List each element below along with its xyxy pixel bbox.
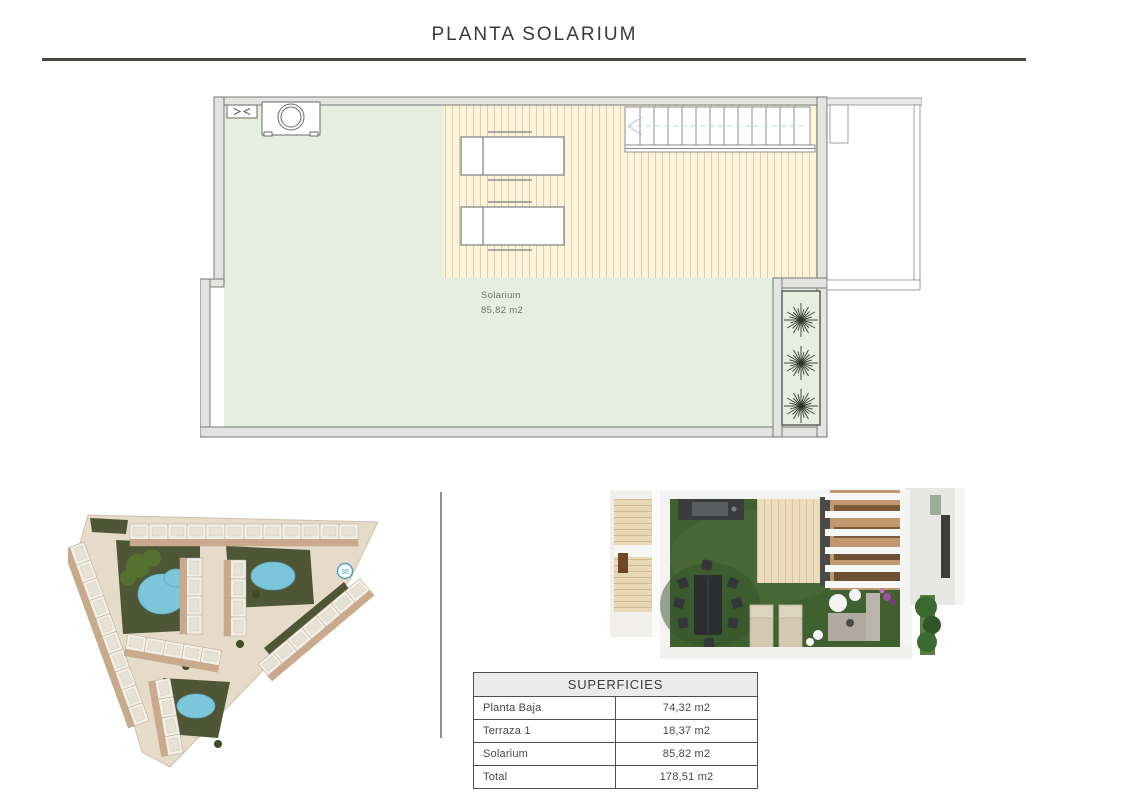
room-name: Solarium <box>481 288 523 303</box>
plan-sheet: PLANTA SOLARIUM <box>0 0 1131 800</box>
planter <box>782 291 820 425</box>
deck-shadow-edge <box>820 497 830 587</box>
room-area: 85,82 m2 <box>481 303 523 318</box>
page-title: PLANTA SOLARIUM <box>0 24 1069 46</box>
row-label: Terraza 1 <box>474 720 616 743</box>
table-row: Solarium 85,82 m2 <box>474 743 758 766</box>
stairs <box>625 107 815 152</box>
neighbor-unit-outline <box>827 98 922 290</box>
solarium-floor-plan-drawing <box>200 95 922 443</box>
bottom-wall <box>660 647 912 659</box>
row-value: 178,51 m2 <box>616 766 758 789</box>
sun-lounger-1 <box>461 132 564 180</box>
table-header: SUPERFICIES <box>474 673 758 697</box>
row-value: 18,37 m2 <box>616 720 758 743</box>
terrace-wood-deck <box>757 499 820 583</box>
table-row: Total 178,51 m2 <box>474 766 758 789</box>
table-row: Terraza 1 18,37 m2 <box>474 720 758 743</box>
unit-marker: 36 <box>338 564 353 579</box>
table-row: Planta Baja 74,32 m2 <box>474 697 758 720</box>
title-rule <box>42 58 1026 61</box>
interior-rooms <box>610 490 662 637</box>
pergola <box>825 490 911 590</box>
row-label: Solarium <box>474 743 616 766</box>
row-label: Planta Baja <box>474 697 616 720</box>
vent-icon <box>227 105 257 118</box>
washing-machine-icon <box>262 102 320 136</box>
ground-floor-3d-render <box>610 487 965 665</box>
sun-lounger-2 <box>461 202 564 250</box>
row-value: 85,82 m2 <box>616 743 758 766</box>
areas-table: SUPERFICIES Planta Baja 74,32 m2 Terraza… <box>473 672 758 789</box>
site-plan: 36 <box>68 498 398 768</box>
row-label: Total <box>474 766 616 789</box>
interior-door <box>618 553 628 573</box>
section-divider <box>440 492 442 738</box>
bbq-counter <box>678 499 744 520</box>
unit-marker-number: 36 <box>341 569 349 576</box>
room-label: Solarium 85,82 m2 <box>481 288 523 318</box>
row-value: 74,32 m2 <box>616 697 758 720</box>
